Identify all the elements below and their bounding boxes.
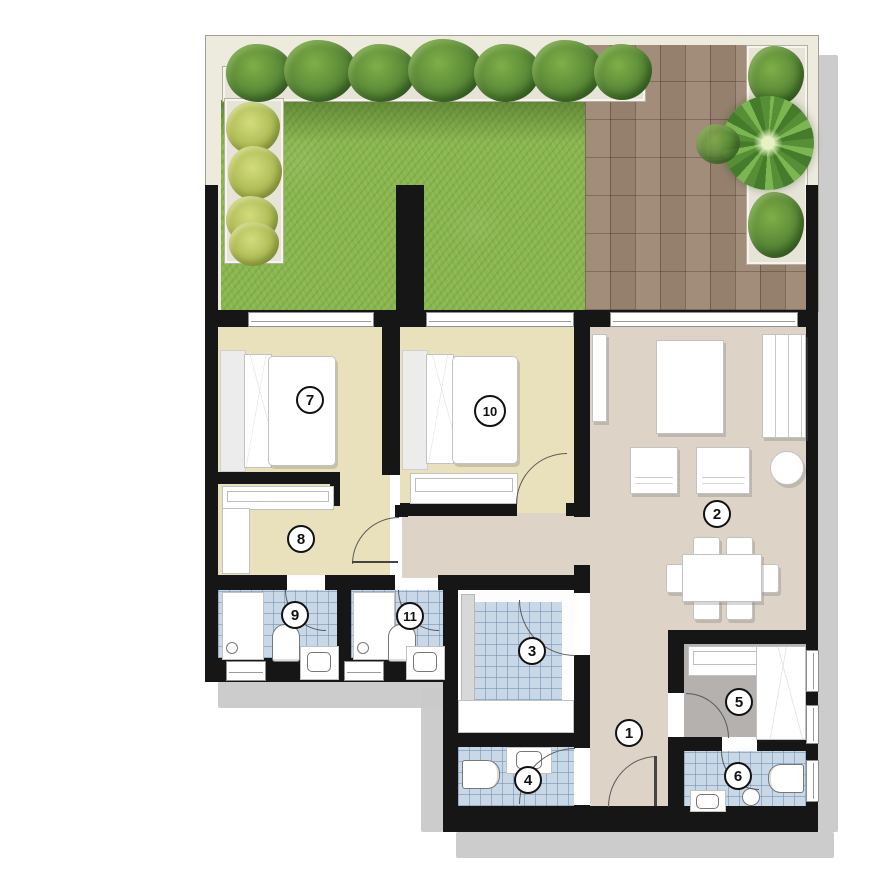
wall xyxy=(205,575,287,590)
console-left xyxy=(592,334,607,422)
wall xyxy=(574,565,590,593)
toilet9 xyxy=(272,624,300,662)
corridor-living-opening xyxy=(574,517,590,565)
wall xyxy=(574,655,590,748)
corridor-floor xyxy=(402,513,574,578)
window xyxy=(806,650,819,692)
room-label-2: 2 xyxy=(703,500,731,528)
wall xyxy=(400,503,517,516)
window xyxy=(426,312,574,327)
wall xyxy=(668,737,684,832)
door-leaf-entrance xyxy=(654,756,657,806)
wall xyxy=(668,630,806,644)
wall xyxy=(806,185,818,312)
wall xyxy=(325,575,395,590)
room-label-7: 7 xyxy=(296,386,324,414)
room-label-6: 6 xyxy=(724,762,752,790)
wall xyxy=(684,737,722,751)
armchair-right xyxy=(696,447,750,494)
toilet6 xyxy=(768,764,804,793)
dining-table xyxy=(682,554,762,602)
room5-closet xyxy=(688,646,764,676)
wall xyxy=(438,575,574,590)
window xyxy=(806,760,819,802)
room-label-5: 5 xyxy=(725,688,753,716)
wall xyxy=(574,327,590,517)
wall xyxy=(443,806,818,832)
basin11 xyxy=(413,652,437,672)
armchair-left xyxy=(630,447,678,494)
room-label-8: 8 xyxy=(287,525,315,553)
wall xyxy=(574,805,590,832)
tv-cabinet xyxy=(762,334,806,438)
room-label-9: 9 xyxy=(281,601,309,629)
shadow-bottom-main xyxy=(456,832,834,858)
bed10-pillows xyxy=(426,354,454,464)
wall xyxy=(668,644,684,693)
dining-chair xyxy=(760,564,779,593)
shadow-left-of-bottom-block xyxy=(421,688,443,832)
window xyxy=(248,312,374,327)
room-label-11: 11 xyxy=(396,602,424,630)
room3-counter-bottom xyxy=(458,700,574,733)
wall xyxy=(443,575,458,832)
door-leaf-room8 xyxy=(352,561,398,563)
bed5 xyxy=(756,646,806,740)
basin6 xyxy=(696,794,719,809)
wall xyxy=(396,185,424,312)
toilet4 xyxy=(462,760,500,789)
room8-closet-left xyxy=(222,508,250,574)
window xyxy=(226,661,266,681)
wall xyxy=(205,185,218,682)
room-label-3: 3 xyxy=(518,637,546,665)
shower11-fixture xyxy=(357,642,369,654)
window xyxy=(610,312,798,327)
room10-closet xyxy=(410,473,518,504)
wall xyxy=(806,310,818,832)
room8-closet-top xyxy=(222,486,334,510)
room-label-1: 1 xyxy=(615,719,643,747)
shower9-fixture xyxy=(226,642,238,654)
wall xyxy=(218,472,340,484)
room-label-10: 10 xyxy=(474,395,506,427)
room-label-4: 4 xyxy=(514,766,542,794)
wall xyxy=(566,503,574,516)
wall xyxy=(382,327,400,475)
floor-plan: 1 2 3 4 5 6 7 8 9 10 11 xyxy=(0,0,871,894)
pedestal-sink6 xyxy=(742,788,760,806)
basin9 xyxy=(307,652,331,672)
bed7-headboard xyxy=(220,350,246,472)
wall xyxy=(443,733,574,747)
side-table xyxy=(770,451,804,485)
window xyxy=(806,705,819,744)
bed10-headboard xyxy=(402,350,428,470)
shadow-right xyxy=(818,55,838,832)
sofa xyxy=(656,340,724,434)
window xyxy=(344,661,384,681)
